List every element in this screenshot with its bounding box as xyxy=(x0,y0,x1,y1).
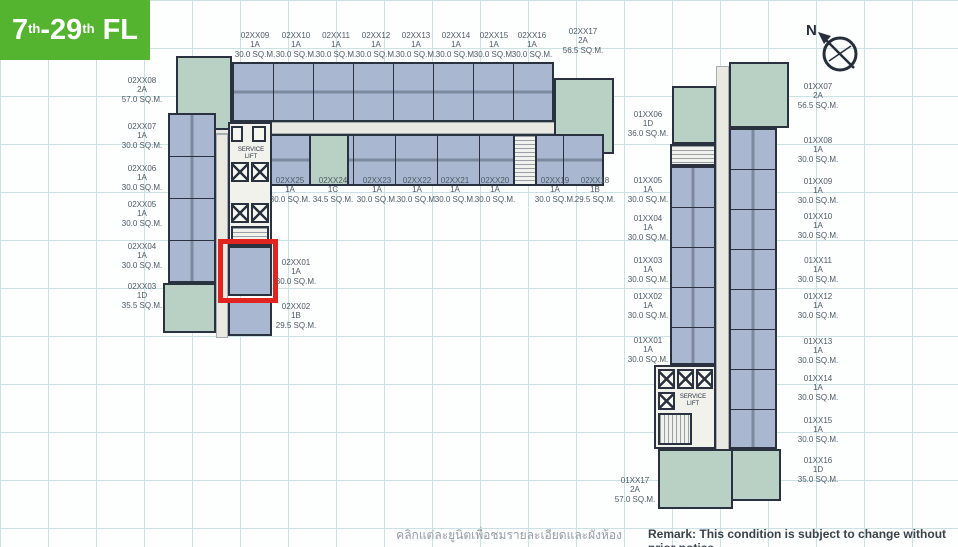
unit-label-02xx01[interactable]: 02XX011A30.0 SQ.M. xyxy=(270,258,322,286)
unit-label-01xx05[interactable]: 01XX051A30.0 SQ.M. xyxy=(623,176,673,204)
unit-label-01xx08[interactable]: 01XX081A30.0 SQ.M. xyxy=(793,136,843,164)
unit-label-01xx12[interactable]: 01XX121A30.0 SQ.M. xyxy=(793,292,843,320)
unit-label-01xx01[interactable]: 01XX011A30.0 SQ.M. xyxy=(623,336,673,364)
unit-label-02xx20[interactable]: 02XX201A30.0 SQ.M. xyxy=(471,176,519,204)
unit-label-02xx04[interactable]: 02XX041A30.0 SQ.M. xyxy=(117,242,167,270)
unit-label-01xx13[interactable]: 01XX131A30.0 SQ.M. xyxy=(793,337,843,365)
north-arrow-icon xyxy=(812,24,864,78)
unit-label-01xx16[interactable]: 01XX161D35.0 SQ.M. xyxy=(793,456,843,484)
unit-label-01xx14[interactable]: 01XX141A30.0 SQ.M. xyxy=(793,374,843,402)
unit-block-01xx16[interactable] xyxy=(729,449,781,501)
lift-icon xyxy=(231,162,249,182)
units-row-top[interactable] xyxy=(232,62,554,122)
unit-label-01xx03[interactable]: 01XX031A30.0 SQ.M. xyxy=(623,256,673,284)
unit-label-02xx07[interactable]: 02XX071A30.0 SQ.M. xyxy=(117,122,167,150)
unit-label-02xx02[interactable]: 02XX021B29.5 SQ.M. xyxy=(270,302,322,330)
unit-label-01xx04[interactable]: 01XX041A30.0 SQ.M. xyxy=(623,214,673,242)
remark-text: Remark: This condition is subject to cha… xyxy=(648,527,953,547)
unit-label-01xx06[interactable]: 01XX061D36.0 SQ.M. xyxy=(623,110,673,138)
unit-label-02xx03[interactable]: 02XX031D35.5 SQ.M. xyxy=(117,282,167,310)
unit-label-01xx10[interactable]: 01XX101A30.0 SQ.M. xyxy=(793,212,843,240)
lift-icon xyxy=(658,369,675,389)
click-unit-instruction: คลิกแต่ละยูนิตเพื่อชมรายละเอียดและผังห้อ… xyxy=(390,526,622,545)
floor-range-badge: 7th-29thFL xyxy=(0,0,150,60)
lift-icon xyxy=(696,369,713,389)
units-col-left[interactable] xyxy=(168,113,216,283)
lift-icon xyxy=(677,369,694,389)
units-col-right-east[interactable] xyxy=(729,128,777,449)
service-lift-label-right: SERVICE LIFT xyxy=(678,394,708,407)
unit-label-01xx02[interactable]: 01XX021A30.0 SQ.M. xyxy=(623,292,673,320)
right-wing-corridor xyxy=(716,66,729,508)
floorplan-canvas: N SERVICE LIFT SERVICE LIFT 02XX091A30 xyxy=(0,0,958,547)
unit-label-01xx09[interactable]: 01XX091A30.0 SQ.M. xyxy=(793,177,843,205)
unit-label-01xx17[interactable]: 01XX172A57.0 SQ.M. xyxy=(610,476,660,504)
lift-icon xyxy=(251,203,269,223)
unit-label-02xx24[interactable]: 02XX241C34.5 SQ.M. xyxy=(309,176,357,204)
unit-label-01xx07[interactable]: 01XX072A56.5 SQ.M. xyxy=(793,82,843,110)
unit-block-01xx17[interactable] xyxy=(658,449,733,509)
unit-block-01xx06[interactable] xyxy=(672,86,716,144)
unit-block-01xx07[interactable] xyxy=(729,62,789,128)
unit-label-02xx18[interactable]: 02XX181B29.5 SQ.M. xyxy=(571,176,619,204)
unit-label-02xx06[interactable]: 02XX061A30.0 SQ.M. xyxy=(117,164,167,192)
unit-label-02xx17[interactable]: 02XX172A56.5 SQ.M. xyxy=(559,27,607,55)
unit-label-01xx15[interactable]: 01XX151A30.0 SQ.M. xyxy=(793,416,843,444)
selected-unit-highlight[interactable] xyxy=(218,239,278,303)
right-wing-stairs-core xyxy=(658,413,692,445)
unit-label-02xx25[interactable]: 02XX251A30.0 SQ.M. xyxy=(266,176,314,204)
lift-icon xyxy=(658,392,675,410)
lift-icon xyxy=(231,203,249,223)
elevator-icon xyxy=(252,126,266,142)
unit-block-02xx03[interactable] xyxy=(163,283,216,333)
unit-label-02xx05[interactable]: 02XX051A30.0 SQ.M. xyxy=(117,200,167,228)
right-wing-stairs-top xyxy=(670,144,716,166)
unit-label-02xx16[interactable]: 02XX161A30.0 SQ.M. xyxy=(508,31,556,59)
unit-block-02xx02[interactable] xyxy=(228,298,272,336)
unit-label-02xx08[interactable]: 02XX082A57.0 SQ.M. xyxy=(117,76,167,104)
units-col-right-west[interactable] xyxy=(670,166,716,365)
unit-label-01xx11[interactable]: 01XX111A30.0 SQ.M. xyxy=(793,256,843,284)
left-wing-corridor-vertical xyxy=(216,134,228,338)
service-lift-label-left: SERVICE LIFT xyxy=(234,147,268,160)
elevator-icon xyxy=(231,126,243,142)
